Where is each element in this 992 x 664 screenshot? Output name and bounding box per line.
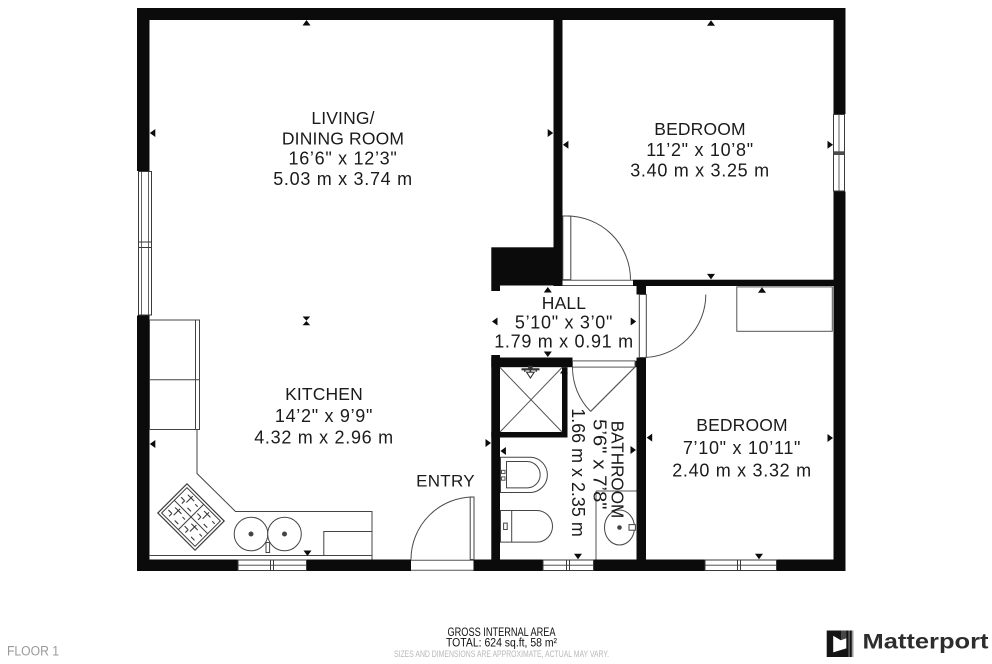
svg-text:5’10" x 3’0": 5’10" x 3’0" [515, 313, 613, 333]
svg-text:BEDROOM: BEDROOM [696, 415, 787, 435]
svg-text:LIVING/: LIVING/ [311, 108, 374, 128]
svg-text:HALL: HALL [542, 293, 586, 313]
svg-text:BATHROOM: BATHROOM [608, 421, 628, 519]
svg-text:2.40 m x 3.32 m: 2.40 m x 3.32 m [672, 461, 812, 481]
svg-text:DINING ROOM: DINING ROOM [282, 129, 404, 149]
svg-text:5.03 m x 3.74 m: 5.03 m x 3.74 m [273, 169, 413, 189]
svg-text:11’2" x 10’8": 11’2" x 10’8" [646, 140, 754, 160]
svg-text:3.40 m x 3.25 m: 3.40 m x 3.25 m [630, 161, 770, 181]
svg-text:4.32 m x 2.96 m: 4.32 m x 2.96 m [254, 428, 394, 448]
svg-text:1.79 m x 0.91 m: 1.79 m x 0.91 m [494, 332, 634, 352]
svg-text:7’10" x 10’11": 7’10" x 10’11" [683, 438, 801, 458]
svg-text:Matterport: Matterport [863, 630, 989, 654]
svg-text:14’2" x 9’9": 14’2" x 9’9" [275, 406, 373, 426]
svg-text:5’6" x 7’8": 5’6" x 7’8" [590, 419, 610, 510]
svg-text:16’6" x 12’3": 16’6" x 12’3" [289, 149, 398, 169]
svg-text:TOTAL: 624 sq.ft, 58 m²: TOTAL: 624 sq.ft, 58 m² [446, 636, 557, 650]
svg-text:SIZES AND DIMENSIONS ARE APPRO: SIZES AND DIMENSIONS ARE APPROXIMATE, AC… [394, 649, 609, 659]
svg-text:ENTRY: ENTRY [416, 472, 475, 491]
svg-text:BEDROOM: BEDROOM [654, 119, 745, 139]
svg-text:KITCHEN: KITCHEN [285, 384, 363, 404]
svg-text:1.66 m x 2.35 m: 1.66 m x 2.35 m [568, 408, 588, 537]
svg-text:FLOOR 1: FLOOR 1 [7, 644, 59, 659]
